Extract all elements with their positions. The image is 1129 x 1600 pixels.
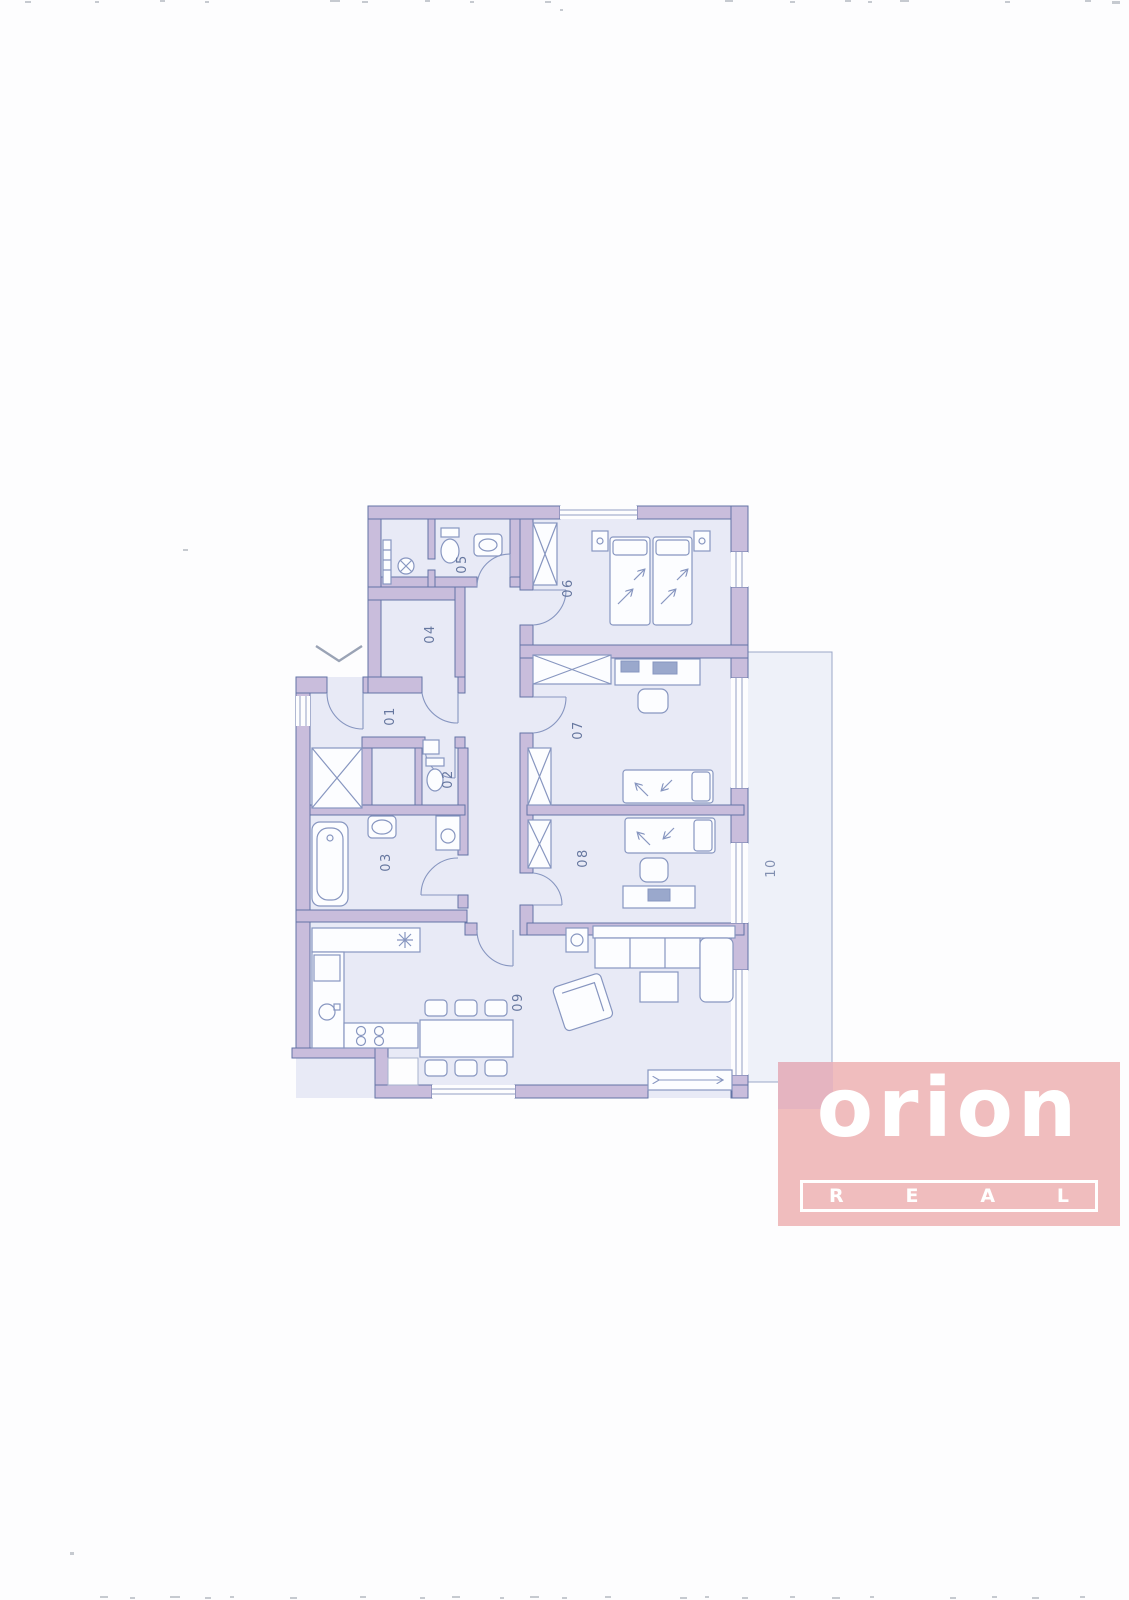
room-label-03: 03 bbox=[379, 852, 394, 872]
floor-plan: 01 02 03 04 05 06 07 08 09 10 bbox=[0, 0, 1129, 1600]
exterior-recess bbox=[388, 1058, 418, 1085]
entrance-direction-chevron bbox=[316, 646, 362, 661]
room-label-05: 05 bbox=[455, 554, 470, 574]
scan-artifacts-bottom bbox=[70, 1552, 1085, 1599]
window-hall-left bbox=[296, 696, 310, 726]
window-bedroom-07-right bbox=[731, 678, 748, 788]
orion-real-logo: orion R E A L bbox=[778, 1062, 1120, 1226]
window-bedroom-06-top bbox=[560, 506, 637, 519]
room-label-06: 06 bbox=[561, 578, 576, 598]
logo-letter-r: R bbox=[829, 1185, 844, 1207]
logo-letter-e: E bbox=[905, 1185, 918, 1207]
room-label-08: 08 bbox=[576, 848, 591, 868]
terrace-room-10 bbox=[744, 652, 832, 1082]
room-label-01: 01 bbox=[383, 706, 398, 726]
logo-letter-a: A bbox=[980, 1185, 995, 1207]
room-label-07: 07 bbox=[571, 720, 586, 740]
window-bedroom-08-right bbox=[731, 843, 748, 923]
logo-brand-text: orion bbox=[778, 1068, 1120, 1150]
window-bedroom-06-right bbox=[731, 552, 748, 587]
sliding-door-terrace bbox=[648, 1070, 732, 1090]
window-living-bottom bbox=[432, 1085, 515, 1098]
scan-artifacts-top bbox=[25, 0, 1120, 551]
room-label-10: 10 bbox=[764, 858, 779, 878]
scanned-floorplan-page: 01 02 03 04 05 06 07 08 09 10 orion R E … bbox=[0, 0, 1129, 1600]
logo-letter-l: L bbox=[1057, 1185, 1069, 1207]
room-label-04: 04 bbox=[423, 624, 438, 644]
room-label-09: 09 bbox=[511, 992, 526, 1012]
logo-real-box: R E A L bbox=[800, 1180, 1098, 1212]
room-label-02: 02 bbox=[441, 769, 456, 789]
